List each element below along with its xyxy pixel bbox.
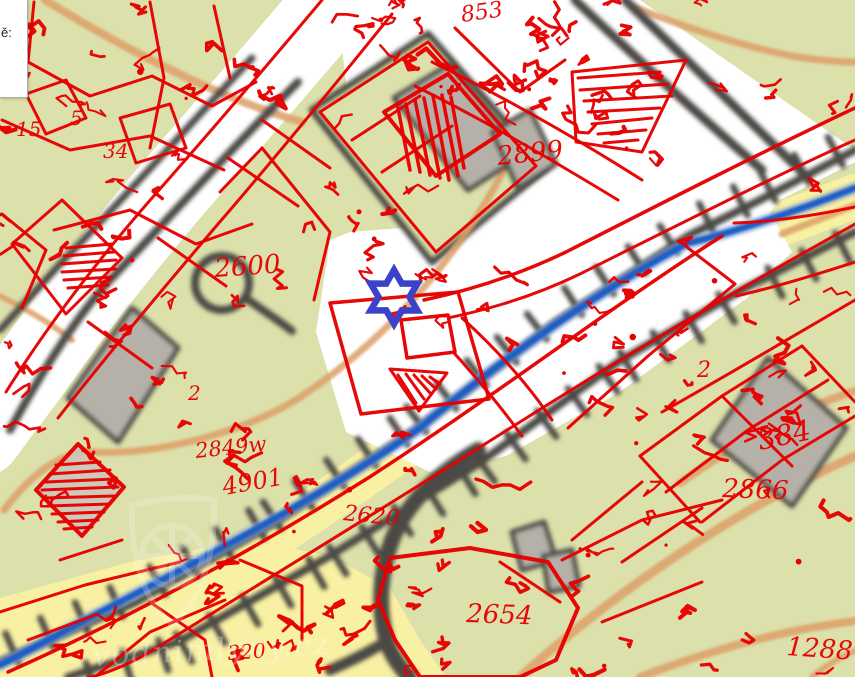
parcel-label: 2654 xyxy=(465,599,533,631)
parcel-label: 2866 xyxy=(721,474,789,506)
parcel-label: 2 xyxy=(187,381,201,405)
map-canvas[interactable]: 26002899853286638412882620265449012849w3… xyxy=(0,0,855,677)
parcel-label: 1288 xyxy=(786,632,854,667)
parcel-label: 15 xyxy=(16,117,41,141)
info-panel-label: ě: xyxy=(1,25,12,40)
parcel-label: 5 xyxy=(70,106,83,130)
parcel-label: 2600 xyxy=(212,249,281,284)
map-viewer: 26002899853286638412882620265449012849w3… xyxy=(0,0,855,677)
parcel-label: 34 xyxy=(103,139,128,163)
parcel-label: 2 xyxy=(696,358,711,383)
info-panel-clipped: ě: xyxy=(0,0,28,98)
